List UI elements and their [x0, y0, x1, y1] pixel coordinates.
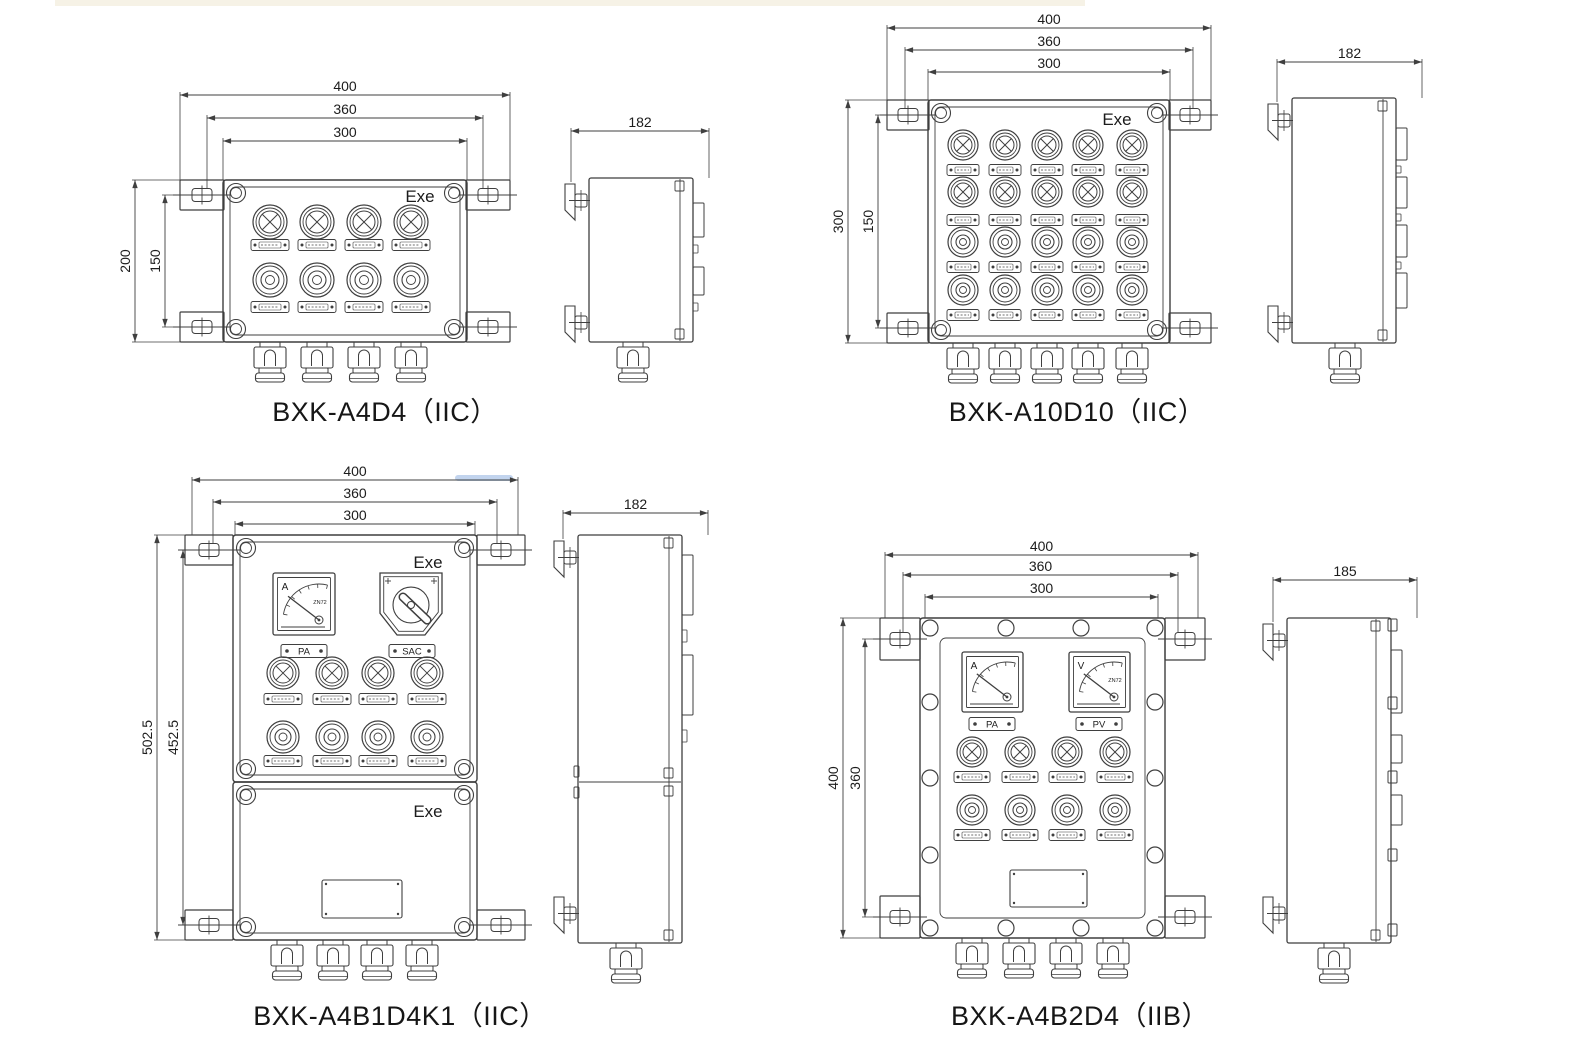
svg-text:185: 185 — [1333, 563, 1357, 579]
mounting-foot — [470, 910, 532, 940]
hinge — [1391, 735, 1402, 763]
svg-text:Exe: Exe — [1102, 110, 1131, 129]
nameplate — [322, 880, 402, 918]
nameplate — [1010, 870, 1087, 907]
svg-text:400: 400 — [825, 766, 841, 790]
cable-gland-icon — [956, 938, 988, 978]
cable-gland-icon — [1003, 938, 1035, 978]
cable-gland-icon — [301, 342, 333, 382]
push-button-icon — [948, 275, 978, 305]
indicator-lamp-icon — [1117, 177, 1147, 207]
push-button-icon — [1117, 227, 1147, 257]
push-button-icon — [1073, 227, 1103, 257]
cable-gland-icon — [254, 342, 286, 382]
label-plate — [298, 240, 336, 251]
svg-text:V: V — [1078, 661, 1085, 672]
label-plate — [947, 310, 979, 321]
indicator-lamp-icon — [1117, 130, 1147, 160]
hinge — [1396, 177, 1407, 208]
svg-text:SAC: SAC — [402, 647, 422, 658]
cable-gland-icon — [610, 943, 642, 983]
label-plate — [1031, 310, 1063, 321]
side-width-dimension: 182 — [571, 114, 709, 182]
cover-bolt-icon — [455, 760, 474, 779]
svg-text:400: 400 — [1030, 540, 1054, 554]
function-plate: SAC — [389, 645, 435, 658]
svg-text:Exe: Exe — [413, 802, 442, 821]
flange-bolt-icon — [922, 847, 938, 863]
label-plate — [989, 165, 1021, 176]
svg-text:PV: PV — [1093, 720, 1106, 731]
side-view: 182 — [1268, 45, 1422, 383]
hinge — [1391, 795, 1402, 825]
cable-gland-icon — [1072, 343, 1104, 383]
cover-bolt-icon — [932, 321, 951, 340]
svg-text:360: 360 — [1029, 558, 1053, 574]
indicator-lamp-icon — [990, 177, 1020, 207]
drawing-caption: BXK-A4B1D4K1（IIC） — [200, 994, 600, 1033]
cover-bolt-icon — [227, 184, 246, 203]
label-plate — [1072, 310, 1104, 321]
label-plate — [392, 302, 430, 313]
label-plate — [359, 694, 397, 705]
push-button-icon — [267, 721, 299, 753]
cable-glands — [271, 940, 438, 980]
svg-text:182: 182 — [624, 496, 648, 512]
label-plate — [1116, 165, 1148, 176]
cable-gland-icon — [1097, 938, 1129, 978]
indicator-lamp-icon — [394, 205, 428, 239]
label-plate — [954, 830, 990, 841]
push-button-icon — [990, 227, 1020, 257]
push-button-icon — [990, 275, 1020, 305]
svg-text:150: 150 — [860, 210, 876, 234]
svg-text:ZN72: ZN72 — [1108, 678, 1121, 684]
mounting-foot — [1158, 896, 1212, 938]
cable-gland-icon — [1329, 343, 1361, 383]
label-plate — [1072, 215, 1104, 226]
label-plate — [1031, 215, 1063, 226]
drawing-panel-bxk-a4b1d4k1: 400360300502.5452.5AZN72PASACExeExe182 — [130, 460, 820, 1045]
cable-gland-icon — [317, 940, 349, 980]
label-plate — [989, 262, 1021, 273]
controls: AZN72PASAC — [264, 573, 446, 767]
push-button-icon — [1032, 275, 1062, 305]
side-width-dimension: 182 — [563, 496, 708, 539]
indicator-lamp-icon — [316, 657, 348, 689]
push-button-icon — [1052, 795, 1082, 825]
label-plate — [392, 240, 430, 251]
label-plate — [1049, 830, 1085, 841]
svg-text:300: 300 — [333, 124, 357, 140]
label-plate — [1072, 262, 1104, 273]
indicator-lamp-icon — [957, 737, 987, 767]
panel-meter-icon: A — [962, 652, 1023, 712]
function-plate: PA — [969, 718, 1015, 731]
indicator-lamp-icon — [253, 205, 287, 239]
cable-gland-icon — [1050, 938, 1082, 978]
label-plate — [264, 694, 302, 705]
push-button-icon — [1073, 275, 1103, 305]
mounting-feet — [173, 180, 517, 342]
label-plate — [345, 240, 383, 251]
indicator-lamp-icon — [300, 205, 334, 239]
flange-bolt-icon — [998, 620, 1014, 636]
drawing-panel-bxk-a4d4: 400360300200150Exe182 — [105, 80, 765, 430]
function-plate: PV — [1076, 718, 1122, 731]
label-plate — [947, 215, 979, 226]
svg-text:400: 400 — [343, 463, 367, 479]
wall-bracket-icon — [565, 306, 590, 342]
svg-text:360: 360 — [333, 101, 357, 117]
controls: APAVZN72PV — [954, 652, 1133, 841]
indicator-lamp-icon — [948, 177, 978, 207]
indicator-lamp-icon — [1032, 130, 1062, 160]
flange-bolt-icon — [922, 770, 938, 786]
hinge — [1396, 273, 1407, 308]
cover-bolt-icon — [237, 760, 256, 779]
side-view: 182 — [565, 114, 709, 382]
push-button-icon — [1100, 795, 1130, 825]
svg-text:182: 182 — [1338, 45, 1362, 61]
hinge — [1396, 128, 1407, 160]
flange-bolt-icon — [998, 920, 1014, 936]
cover-bolt-icon — [455, 918, 474, 937]
flange-bolt-icon — [922, 620, 938, 636]
svg-text:360: 360 — [1037, 33, 1061, 49]
hinge — [1396, 225, 1407, 257]
cover-bolt-icon — [227, 320, 246, 339]
cover-bolt-icon — [445, 184, 464, 203]
label-plate — [408, 694, 446, 705]
dimensions: 400360300200150 — [117, 80, 510, 342]
svg-text:PA: PA — [986, 720, 999, 731]
push-button-icon — [948, 227, 978, 257]
cable-gland-icon — [348, 342, 380, 382]
label-plate — [1116, 310, 1148, 321]
svg-text:200: 200 — [117, 249, 133, 273]
side-view: 185 — [1263, 563, 1417, 983]
flange-bolt-icon — [922, 920, 938, 936]
svg-text:502.5: 502.5 — [139, 720, 155, 755]
side-width-dimension: 185 — [1273, 563, 1417, 622]
label-plate — [1072, 165, 1104, 176]
controls — [947, 130, 1148, 321]
label-plate — [313, 694, 351, 705]
flange-bolt-icon — [922, 694, 938, 710]
side-width-dimension: 182 — [1277, 45, 1422, 102]
drawing-panel-bxk-a4b2d4: 400360300400360APAVZN72PV185 — [820, 540, 1520, 1050]
cable-glands — [947, 343, 1148, 383]
cable-gland-icon — [1031, 343, 1063, 383]
rotary-switch-icon — [380, 573, 442, 635]
drawing-caption: BXK-A4D4（IIC） — [185, 390, 585, 429]
wall-bracket-icon — [1263, 897, 1288, 933]
label-plate — [1002, 772, 1038, 783]
svg-text:PA: PA — [298, 647, 311, 658]
label-plate — [251, 240, 289, 251]
panel-meter-icon: VZN72 — [1069, 652, 1130, 712]
cover-bolt-icon — [1148, 321, 1167, 340]
indicator-lamp-icon — [1005, 737, 1035, 767]
push-button-icon — [253, 263, 287, 297]
svg-text:ZN72: ZN72 — [313, 600, 326, 606]
front-view: 400360300400360APAVZN72PV — [825, 540, 1212, 978]
label-plate — [1031, 262, 1063, 273]
drawing-caption: BXK-A10D10（IIC） — [877, 390, 1277, 429]
label-plate — [264, 756, 302, 767]
technical-drawing-sheet: 400360300200150Exe182 400360300300150Exe… — [0, 0, 1593, 1050]
label-plate — [1116, 262, 1148, 273]
mounting-foot — [1158, 618, 1212, 660]
cover-bolt-icon — [445, 320, 464, 339]
wall-bracket-icon — [1268, 104, 1293, 140]
drawing-panel-bxk-a10d10: 400360300300150Exe182 — [810, 10, 1500, 430]
svg-text:300: 300 — [1030, 580, 1054, 596]
drawing-caption: BXK-A4B2D4（IIB） — [880, 994, 1280, 1033]
flange-bolt-icon — [1147, 620, 1163, 636]
cable-gland-icon — [395, 342, 427, 382]
indicator-lamp-icon — [267, 657, 299, 689]
svg-text:300: 300 — [830, 210, 846, 234]
flange-bolt-icon — [1147, 770, 1163, 786]
flange-bolt-icon — [1073, 620, 1089, 636]
flange-bolt-icon — [1147, 694, 1163, 710]
push-button-icon — [394, 263, 428, 297]
indicator-lamp-icon — [347, 205, 381, 239]
cable-gland-icon — [947, 343, 979, 383]
cable-gland-icon — [1318, 943, 1350, 983]
cable-gland-icon — [1116, 343, 1148, 383]
label-plate — [947, 165, 979, 176]
indicator-lamp-icon — [1052, 737, 1082, 767]
indicator-lamp-icon — [1100, 737, 1130, 767]
indicator-lamp-icon — [411, 657, 443, 689]
label-plate — [251, 302, 289, 313]
mounting-foot — [470, 535, 532, 565]
hinge — [693, 203, 704, 237]
label-plate — [989, 215, 1021, 226]
print-artifact — [55, 0, 1085, 6]
cover-bolt-icon — [237, 918, 256, 937]
front-view: 400360300300150Exe — [830, 11, 1218, 383]
panel-meter-icon: AZN72 — [273, 573, 335, 635]
push-button-icon — [411, 721, 443, 753]
push-button-icon — [300, 263, 334, 297]
label-plate — [1116, 215, 1148, 226]
cover-bolt-icon — [237, 786, 256, 805]
svg-text:A: A — [971, 661, 978, 672]
flange-bolt-icon — [1073, 920, 1089, 936]
flange-bolt-icon — [1147, 920, 1163, 936]
cable-gland-icon — [406, 940, 438, 980]
label-plate — [359, 756, 397, 767]
hinge — [682, 555, 693, 615]
cable-gland-icon — [361, 940, 393, 980]
svg-text:300: 300 — [343, 507, 367, 523]
cover-bolt-icon — [455, 539, 474, 558]
indicator-lamp-icon — [948, 130, 978, 160]
wall-bracket-icon — [1268, 306, 1293, 342]
hinge — [693, 267, 704, 295]
label-plate — [1049, 772, 1085, 783]
flange-bolt-icon — [1147, 847, 1163, 863]
mounting-feet — [178, 535, 532, 940]
function-plate: PA — [281, 645, 327, 658]
cable-gland-icon — [271, 940, 303, 980]
label-plate — [989, 310, 1021, 321]
dimensions: 400360300300150 — [830, 11, 1211, 343]
cover-bolt-icon — [932, 104, 951, 123]
svg-text:400: 400 — [333, 80, 357, 94]
push-button-icon — [1117, 275, 1147, 305]
wall-bracket-icon — [1263, 624, 1288, 660]
wall-bracket-icon — [554, 541, 579, 577]
label-plate — [947, 262, 979, 273]
cable-glands — [956, 938, 1129, 978]
svg-text:Exe: Exe — [413, 553, 442, 572]
cable-gland-icon — [989, 343, 1021, 383]
svg-text:A: A — [282, 582, 289, 593]
label-plate — [1002, 830, 1038, 841]
push-button-icon — [1005, 795, 1035, 825]
indicator-lamp-icon — [1073, 130, 1103, 160]
cover-bolt-icon — [1148, 104, 1167, 123]
svg-text:182: 182 — [628, 114, 652, 130]
side-view: 182 — [554, 496, 708, 983]
cable-gland-icon — [617, 342, 649, 382]
svg-text:Exe: Exe — [405, 187, 434, 206]
svg-text:360: 360 — [847, 766, 863, 790]
cable-glands — [254, 342, 427, 382]
svg-text:150: 150 — [147, 249, 163, 273]
wall-bracket-icon — [565, 184, 590, 220]
mounting-feet — [873, 618, 1212, 938]
indicator-lamp-icon — [1032, 177, 1062, 207]
push-button-icon — [957, 795, 987, 825]
front-view: 400360300502.5452.5AZN72PASACExeExe — [139, 463, 532, 980]
controls — [251, 205, 430, 313]
cover-bolt-icon — [455, 786, 474, 805]
front-view: 400360300200150Exe — [117, 80, 517, 382]
indicator-lamp-icon — [990, 130, 1020, 160]
label-plate — [298, 302, 336, 313]
svg-text:452.5: 452.5 — [165, 720, 181, 755]
label-plate — [408, 756, 446, 767]
cover-bolt-icon — [237, 539, 256, 558]
push-button-icon — [362, 721, 394, 753]
label-plate — [1031, 165, 1063, 176]
svg-text:300: 300 — [1037, 55, 1061, 71]
indicator-lamp-icon — [1073, 177, 1103, 207]
push-button-icon — [347, 263, 381, 297]
push-button-icon — [316, 721, 348, 753]
label-plate — [1097, 830, 1133, 841]
label-plate — [313, 756, 351, 767]
label-plate — [345, 302, 383, 313]
wall-bracket-icon — [554, 897, 579, 933]
indicator-lamp-icon — [362, 657, 394, 689]
label-plate — [954, 772, 990, 783]
label-plate — [1097, 772, 1133, 783]
svg-text:400: 400 — [1037, 11, 1061, 27]
hinge — [682, 655, 693, 715]
svg-text:360: 360 — [343, 485, 367, 501]
push-button-icon — [1032, 227, 1062, 257]
